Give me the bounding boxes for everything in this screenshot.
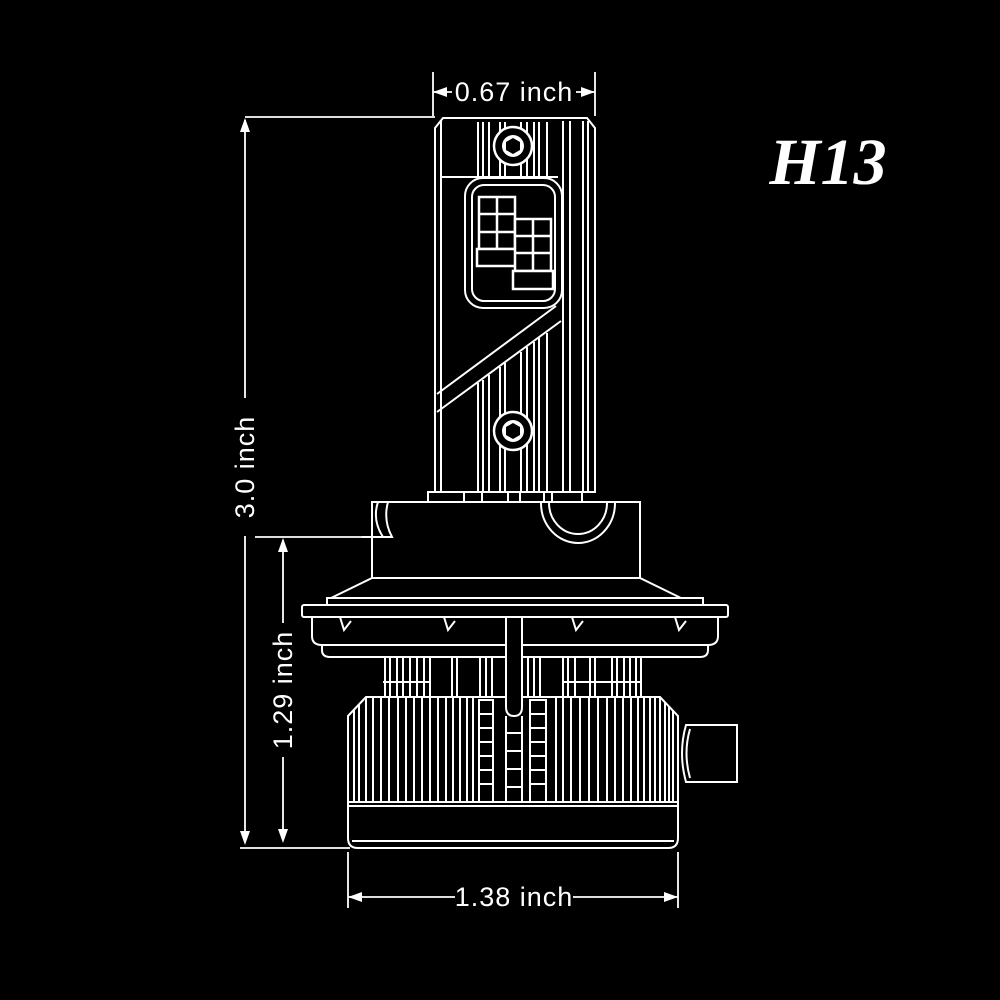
overall-height-label: 3.0 inch [230,416,260,519]
connector-housing [465,178,562,308]
arrow-down-icon [278,829,288,843]
arrow-up-icon [278,538,288,552]
collar [329,502,683,599]
base-width-label: 1.38 inch [455,882,574,912]
arrow-left-icon [433,87,447,97]
arrow-right-icon [581,87,595,97]
dimension-top-width: 0.67 inch [433,72,595,116]
arrow-right-icon [664,892,678,902]
lower-height-label: 1.29 inch [268,631,298,750]
pin-grid-left [477,197,517,266]
arrow-down-icon [240,831,250,845]
part-number-label: H13 [768,126,886,199]
technical-drawing-canvas: 0.67 inch 3.0 inch 1.29 inch [0,0,1000,1000]
center-shaft [506,617,522,716]
pin-grid-right [513,219,553,289]
arrow-up-icon [240,118,250,132]
side-connector [682,725,737,782]
collar-shoulder [329,578,683,599]
top-screw [494,127,532,165]
bottom-screw [494,412,532,450]
top-width-label: 0.67 inch [455,77,574,107]
bulb-drawing [302,118,737,848]
arrow-left-icon [348,892,362,902]
body-feet [428,492,582,502]
dimension-base-width: 1.38 inch [348,852,678,912]
bulb-dimension-diagram: 0.67 inch 3.0 inch 1.29 inch [0,0,1000,1000]
fan-drum [348,697,678,848]
